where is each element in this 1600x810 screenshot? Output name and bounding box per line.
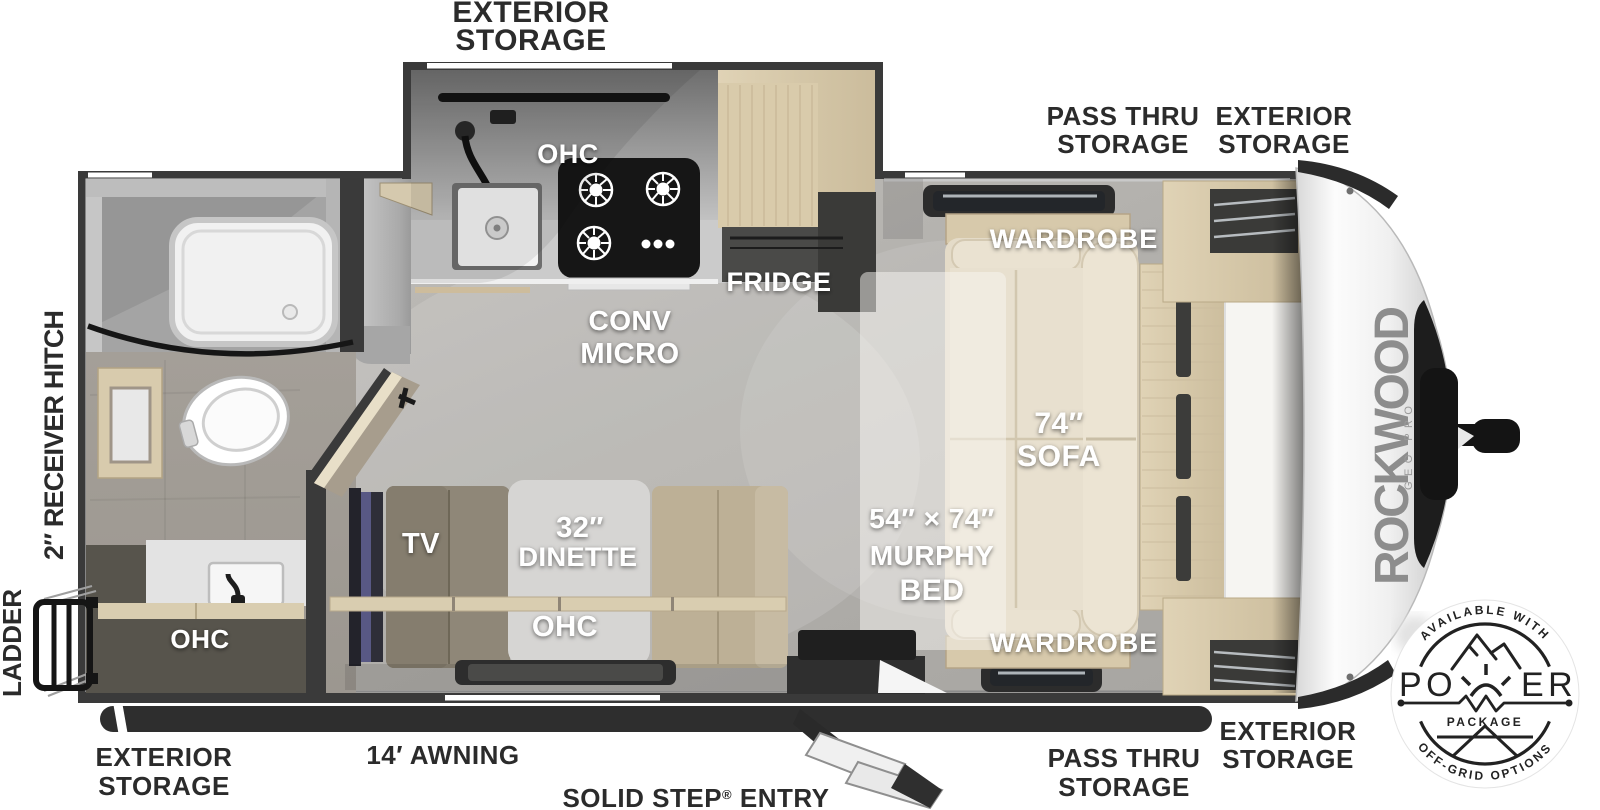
svg-text:74″: 74″ — [1034, 407, 1083, 440]
svg-text:LADDER: LADDER — [0, 589, 27, 697]
svg-text:STORAGE: STORAGE — [1222, 744, 1354, 774]
svg-text:TV: TV — [402, 528, 440, 560]
svg-text:SOLID STEP® ENTRY: SOLID STEP® ENTRY — [562, 783, 829, 810]
svg-text:STORAGE: STORAGE — [455, 24, 606, 57]
svg-text:EXTERIOR: EXTERIOR — [1216, 101, 1353, 131]
svg-text:14′ AWNING: 14′ AWNING — [366, 740, 519, 770]
svg-text:WARDROBE: WARDROBE — [990, 628, 1159, 658]
svg-text:54″ × 74″: 54″ × 74″ — [869, 503, 995, 534]
svg-text:OHC: OHC — [537, 139, 599, 169]
svg-text:MICRO: MICRO — [580, 338, 679, 370]
svg-text:STORAGE: STORAGE — [1057, 129, 1189, 159]
svg-text:PASS THRU: PASS THRU — [1048, 743, 1201, 773]
svg-text:FRIDGE: FRIDGE — [726, 267, 831, 297]
svg-text:EXTERIOR: EXTERIOR — [1220, 716, 1357, 746]
svg-text:OHC: OHC — [170, 624, 229, 654]
svg-text:PO: PO — [1399, 666, 1457, 704]
svg-text:2″ RECEIVER HITCH: 2″ RECEIVER HITCH — [39, 310, 69, 560]
svg-text:DINETTE: DINETTE — [518, 542, 637, 572]
svg-text:STORAGE: STORAGE — [1218, 129, 1350, 159]
svg-text:ER: ER — [1521, 666, 1577, 704]
svg-text:BED: BED — [900, 574, 965, 607]
svg-text:SOFA: SOFA — [1017, 440, 1101, 473]
svg-text:GEO PRO: GEO PRO — [1403, 402, 1415, 490]
svg-text:WARDROBE: WARDROBE — [990, 224, 1159, 254]
svg-text:OHC: OHC — [532, 611, 598, 643]
svg-text:32″: 32″ — [556, 512, 604, 544]
svg-text:PASS THRU: PASS THRU — [1047, 101, 1200, 131]
svg-text:EXTERIOR: EXTERIOR — [96, 742, 233, 772]
svg-text:CONV: CONV — [589, 305, 672, 336]
svg-text:STORAGE: STORAGE — [1058, 772, 1190, 802]
svg-text:STORAGE: STORAGE — [98, 771, 230, 801]
svg-text:MURPHY: MURPHY — [870, 540, 994, 571]
